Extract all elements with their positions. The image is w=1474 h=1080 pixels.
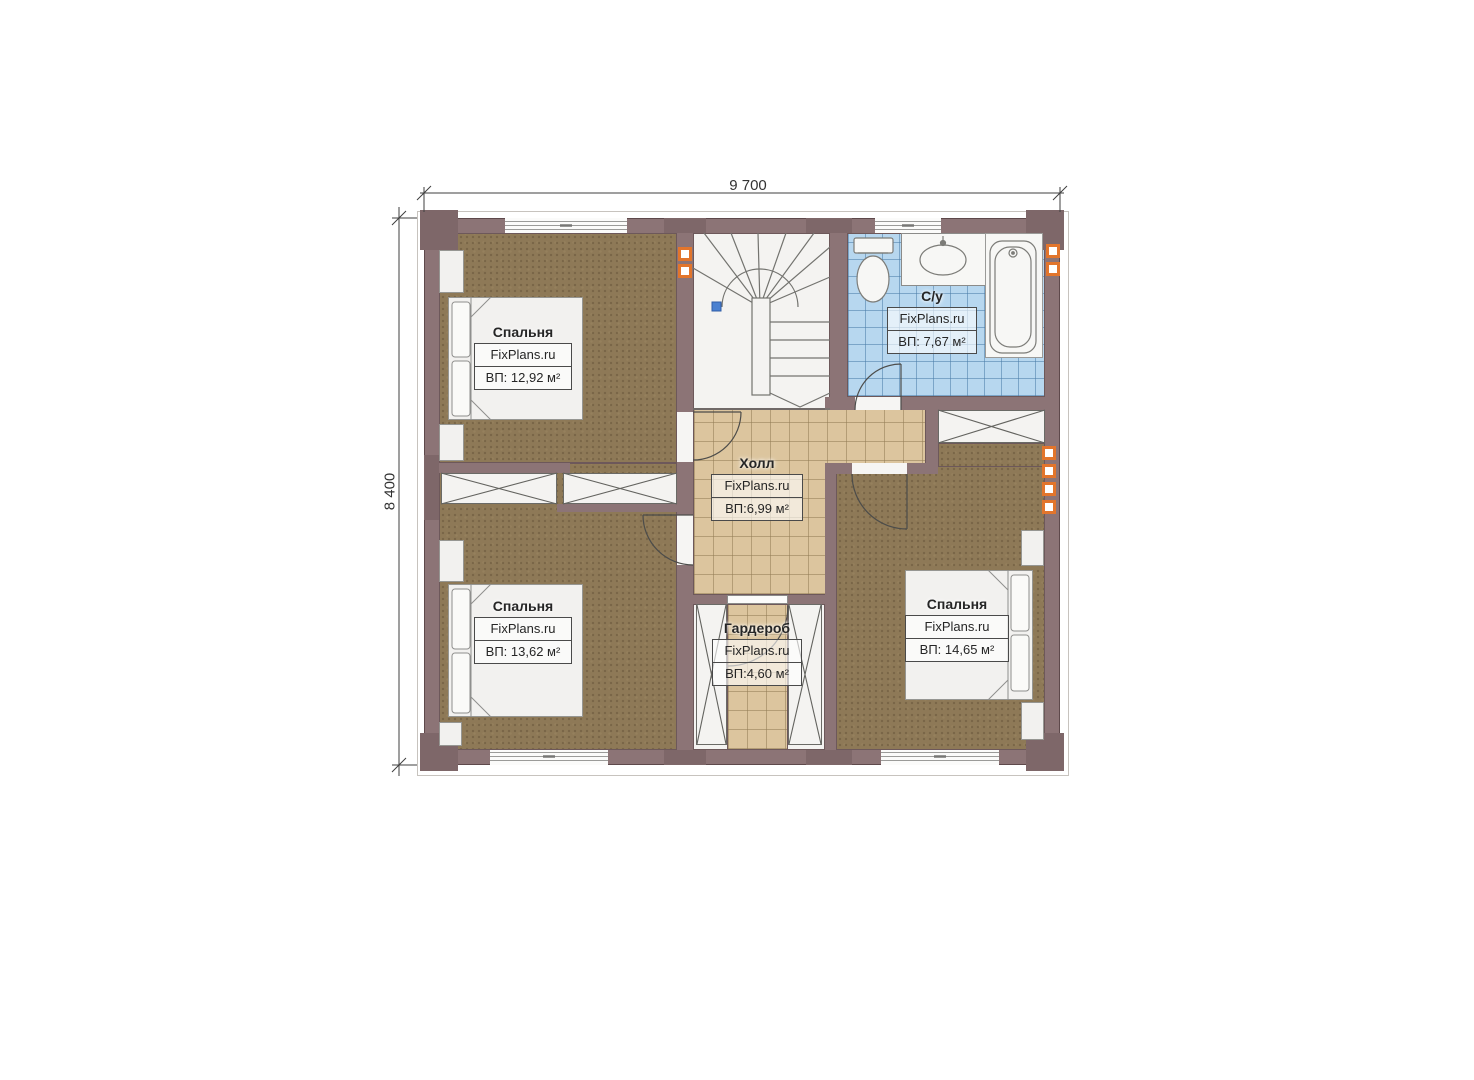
window-top-bathroom <box>875 218 941 233</box>
window-bottom-bedroom-left <box>490 750 608 765</box>
door-gap-bedroom-bottom-right <box>852 463 907 474</box>
label-bathroom: С/у FixPlans.ru ВП: 7,67 м² <box>887 288 977 354</box>
label-box: FixPlans.ru ВП: 7,67 м² <box>887 307 977 354</box>
label-bedroom-top-left: Спальня FixPlans.ru ВП: 12,92 м² <box>474 324 572 390</box>
label-hall: Холл FixPlans.ru ВП:6,99 м² <box>711 455 803 521</box>
area-label: ВП: 12,92 м² <box>475 366 571 389</box>
wall-stub-hall-closet <box>926 410 938 474</box>
brand-label: FixPlans.ru <box>712 475 802 497</box>
pilaster-top-left <box>420 210 458 250</box>
label-bedroom-bottom-left: Спальня FixPlans.ru ВП: 13,62 м² <box>474 598 572 664</box>
nightstand-bottom-right-a <box>1021 530 1044 566</box>
label-box: FixPlans.ru ВП:6,99 м² <box>711 474 803 521</box>
area-label: ВП:6,99 м² <box>712 497 802 520</box>
vent-stairs-2 <box>678 264 692 278</box>
brand-label: FixPlans.ru <box>906 616 1008 638</box>
brand-label: FixPlans.ru <box>888 308 976 330</box>
wall-bedrooms-hall <box>677 233 693 750</box>
label-box: FixPlans.ru ВП: 12,92 м² <box>474 343 572 390</box>
pilaster-top-mid-right <box>806 218 852 233</box>
wall-stairs-bathroom <box>830 233 847 410</box>
pilaster-bottom-mid-right <box>806 750 852 765</box>
room-name: Гардероб <box>712 620 802 636</box>
label-box: FixPlans.ru ВП: 13,62 м² <box>474 617 572 664</box>
wall-closet-strip-bottom <box>557 504 677 512</box>
pilaster-bottom-mid-left <box>664 750 706 765</box>
wall-closet-strip-top <box>439 463 570 473</box>
door-gap-bathroom <box>855 397 901 410</box>
brand-label: FixPlans.ru <box>475 618 571 640</box>
vent-right-mid-2 <box>1042 464 1056 478</box>
wardrobe-door-leaf <box>727 595 788 604</box>
door-gap-bedroom-top-left <box>677 412 693 462</box>
label-wardrobe: Гардероб FixPlans.ru ВП:4,60 м² <box>712 620 802 686</box>
nightstand-bottom-left-b <box>439 722 462 746</box>
bedroom-bottom-right-floor-ext <box>938 443 1045 467</box>
closet-between-bedrooms-left <box>441 473 557 504</box>
dimension-top-label: 9 700 <box>718 177 778 194</box>
floor-plan-canvas: 9 700 8 400 Спальня FixPlans.ru ВП: 12,9… <box>0 0 1474 1080</box>
vent-stairs-1 <box>678 247 692 261</box>
stairs-floor <box>693 233 830 409</box>
area-label: ВП: 14,65 м² <box>906 638 1008 661</box>
nightstand-top-left-b <box>439 424 464 461</box>
vent-right-mid-1 <box>1042 446 1056 460</box>
pilaster-left-mid <box>424 455 439 520</box>
pilaster-top-mid-left <box>664 218 706 233</box>
vent-right-mid-4 <box>1042 500 1056 514</box>
vent-right-top-2 <box>1046 262 1060 276</box>
nightstand-bottom-left-a <box>439 540 464 582</box>
area-label: ВП: 13,62 м² <box>475 640 571 663</box>
closet-between-bedrooms-right <box>563 473 677 504</box>
closet-bedroom-right-top <box>938 410 1045 443</box>
room-name: Спальня <box>905 596 1009 612</box>
room-name: Спальня <box>474 324 572 340</box>
area-label: ВП: 7,67 м² <box>888 330 976 353</box>
nightstand-bottom-right-b <box>1021 702 1044 740</box>
label-box: FixPlans.ru ВП:4,60 м² <box>712 639 802 686</box>
room-name: Холл <box>711 455 803 471</box>
wall-hall-bedroom-right <box>825 463 836 750</box>
window-top-bedroom <box>505 218 627 233</box>
dimension-left-label: 8 400 <box>382 462 399 522</box>
vent-right-top-1 <box>1046 244 1060 258</box>
label-bedroom-bottom-right: Спальня FixPlans.ru ВП: 14,65 м² <box>905 596 1009 662</box>
area-label: ВП:4,60 м² <box>713 662 801 685</box>
bathroom-sink-counter <box>901 233 987 286</box>
door-gap-bedroom-bottom-left <box>677 515 693 565</box>
label-box: FixPlans.ru ВП: 14,65 м² <box>905 615 1009 662</box>
room-name: Спальня <box>474 598 572 614</box>
bathtub-platform <box>985 233 1043 358</box>
room-name: С/у <box>887 288 977 304</box>
brand-label: FixPlans.ru <box>475 344 571 366</box>
brand-label: FixPlans.ru <box>713 640 801 662</box>
nightstand-top-left-a <box>439 250 464 293</box>
window-bottom-bedroom-right <box>881 750 999 765</box>
vent-right-mid-3 <box>1042 482 1056 496</box>
